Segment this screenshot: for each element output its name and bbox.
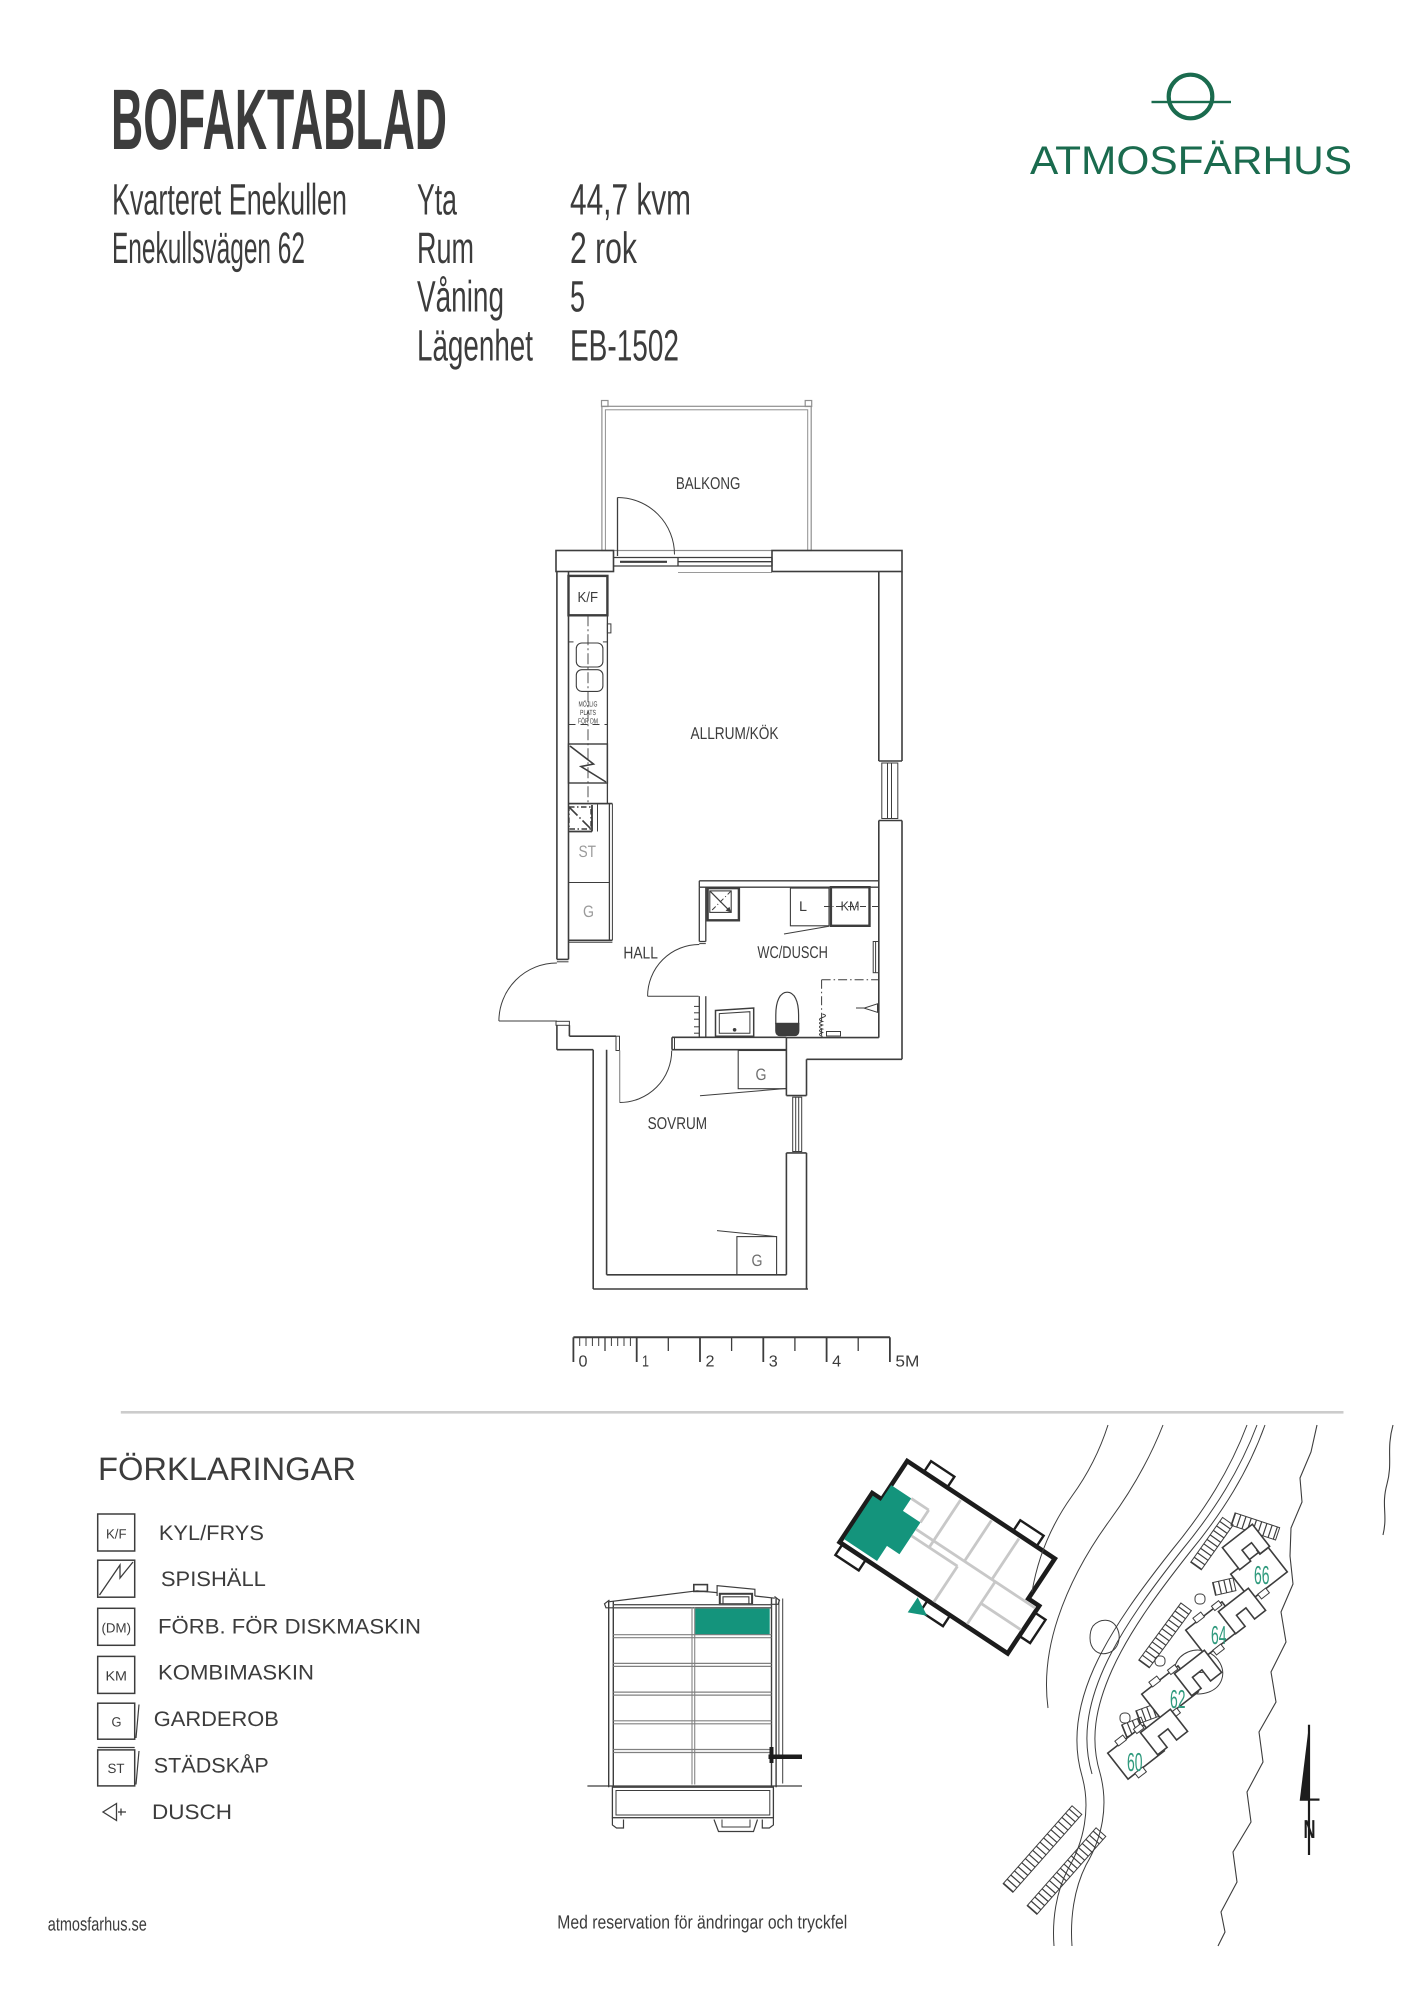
svg-text:44,7 kvm: 44,7 kvm	[570, 176, 691, 225]
svg-text:KM: KM	[106, 1669, 128, 1684]
svg-text:atmosfarhus.se: atmosfarhus.se	[48, 1915, 147, 1936]
svg-text:K/F: K/F	[106, 1527, 127, 1542]
svg-text:Enekullsvägen 62: Enekullsvägen 62	[112, 224, 305, 273]
svg-text:SOVRUM: SOVRUM	[648, 1114, 708, 1133]
svg-text:FÖRKLARINGAR: FÖRKLARINGAR	[98, 1451, 356, 1487]
svg-text:62: 62	[1170, 1684, 1186, 1714]
svg-text:DUSCH: DUSCH	[152, 1801, 232, 1824]
svg-text:3: 3	[769, 1354, 778, 1371]
svg-text:66: 66	[1254, 1560, 1270, 1590]
svg-text:BALKONG: BALKONG	[676, 474, 741, 493]
svg-text:Yta: Yta	[417, 176, 457, 225]
svg-text:(DM): (DM)	[102, 1621, 132, 1636]
svg-text:ST: ST	[108, 1761, 125, 1776]
svg-text:GARDEROB: GARDEROB	[154, 1708, 279, 1731]
svg-text:1: 1	[642, 1354, 649, 1371]
svg-text:0: 0	[579, 1354, 588, 1371]
svg-text:N: N	[1304, 1814, 1316, 1844]
svg-text:G: G	[752, 1252, 763, 1270]
svg-text:Kvarteret Enekullen: Kvarteret Enekullen	[112, 176, 347, 225]
svg-text:Rum: Rum	[417, 224, 474, 273]
svg-text:5M: 5M	[895, 1354, 919, 1371]
svg-text:KYL/FRYS: KYL/FRYS	[159, 1522, 264, 1545]
svg-text:G: G	[756, 1066, 767, 1084]
svg-text:EB-1502: EB-1502	[570, 322, 679, 371]
svg-text:HALL: HALL	[623, 944, 658, 963]
svg-text:K/F: K/F	[578, 590, 599, 606]
svg-text:ST: ST	[579, 843, 597, 861]
svg-text:5: 5	[570, 273, 585, 322]
svg-text:G: G	[112, 1715, 122, 1730]
svg-text:60: 60	[1127, 1747, 1143, 1777]
svg-text:WC/DUSCH: WC/DUSCH	[757, 943, 828, 962]
svg-text:FÖRB. FÖR DISKMASKIN: FÖRB. FÖR DISKMASKIN	[158, 1616, 421, 1639]
svg-text:KOMBIMASKIN: KOMBIMASKIN	[158, 1662, 314, 1685]
svg-text:Våning: Våning	[417, 273, 504, 322]
svg-text:ATMOSFÄRHUS: ATMOSFÄRHUS	[1030, 139, 1352, 183]
svg-text:2: 2	[706, 1354, 715, 1371]
svg-text:SPISHÄLL: SPISHÄLL	[161, 1568, 266, 1591]
svg-text:Med reservation för ändringar: Med reservation för ändringar och tryckf…	[557, 1913, 847, 1934]
svg-text:4: 4	[832, 1354, 841, 1371]
svg-text:ALLRUM/KÖK: ALLRUM/KÖK	[691, 724, 780, 743]
svg-text:FÖR DM: FÖR DM	[578, 717, 598, 726]
svg-text:BOFAKTABLAD: BOFAKTABLAD	[111, 72, 447, 168]
svg-text:G: G	[583, 903, 594, 921]
svg-text:64: 64	[1211, 1620, 1227, 1650]
svg-text:Lägenhet: Lägenhet	[417, 322, 533, 371]
svg-text:2 rok: 2 rok	[570, 224, 638, 273]
svg-text:L: L	[799, 898, 807, 914]
svg-text:STÄDSKÅP: STÄDSKÅP	[154, 1754, 269, 1778]
